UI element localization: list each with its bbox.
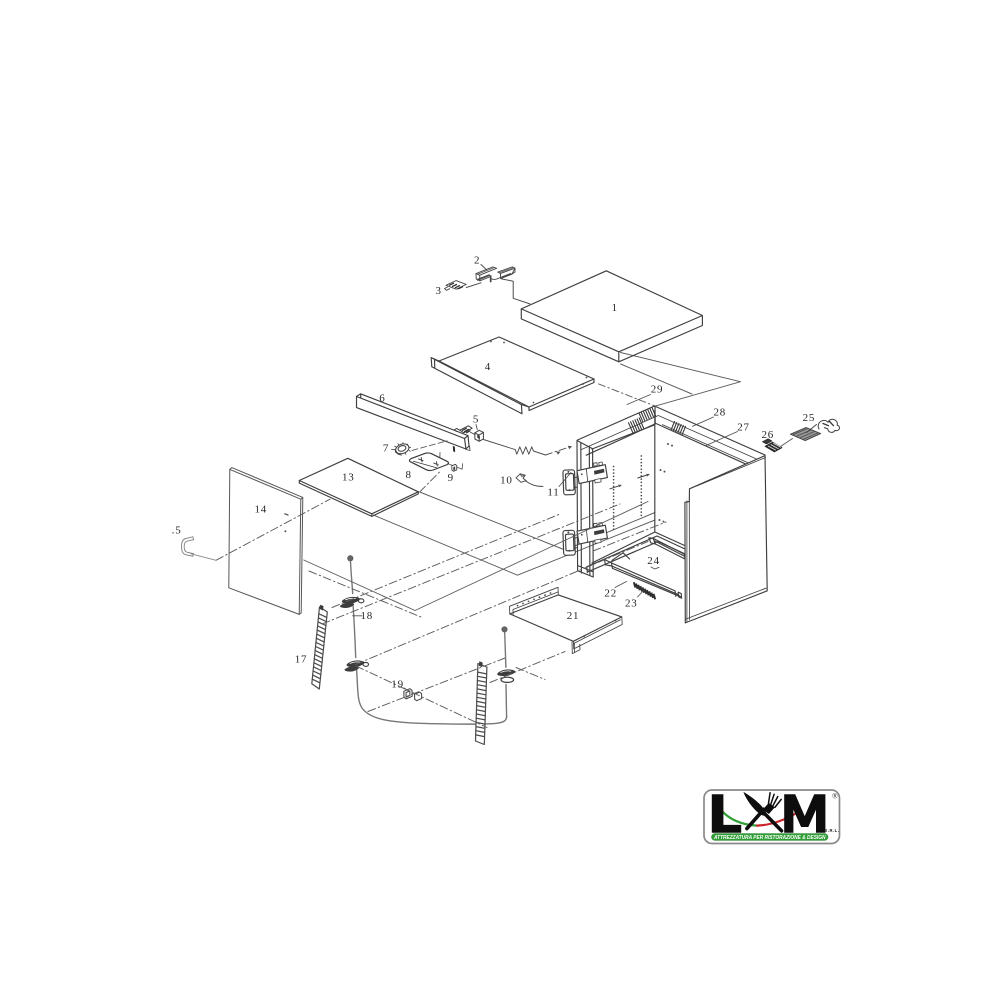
- svg-text:19: 19: [391, 679, 404, 691]
- svg-text:27: 27: [737, 421, 750, 433]
- svg-text:9: 9: [448, 472, 454, 484]
- svg-text:5: 5: [473, 414, 479, 426]
- svg-text:14: 14: [254, 503, 267, 515]
- svg-text:13: 13: [342, 472, 355, 484]
- svg-text:7: 7: [383, 443, 389, 455]
- svg-text:2: 2: [474, 254, 480, 266]
- svg-text:5: 5: [175, 525, 181, 537]
- svg-text:25: 25: [803, 412, 816, 424]
- svg-text:.: .: [172, 525, 175, 537]
- svg-text:®: ®: [832, 792, 838, 801]
- svg-text:21: 21: [567, 610, 580, 622]
- svg-text:4: 4: [485, 361, 491, 373]
- svg-text:11: 11: [547, 487, 559, 499]
- svg-text:3: 3: [435, 285, 441, 297]
- svg-text:10: 10: [500, 475, 513, 487]
- svg-text:28: 28: [713, 407, 726, 419]
- svg-text:ATTREZZATURA PER RISTORAZIONE: ATTREZZATURA PER RISTORAZIONE & DESIGN: [713, 835, 825, 841]
- svg-text:6: 6: [379, 393, 385, 405]
- svg-text:29: 29: [651, 384, 664, 396]
- svg-text:18: 18: [360, 610, 373, 622]
- svg-text:8: 8: [405, 469, 411, 481]
- svg-text:S.R.L.: S.R.L.: [825, 828, 840, 833]
- svg-text:23: 23: [625, 598, 638, 610]
- svg-text:17: 17: [295, 654, 308, 666]
- svg-text:22: 22: [604, 587, 617, 599]
- svg-text:24: 24: [647, 555, 660, 567]
- svg-text:1: 1: [612, 302, 618, 314]
- svg-text:26: 26: [761, 429, 774, 441]
